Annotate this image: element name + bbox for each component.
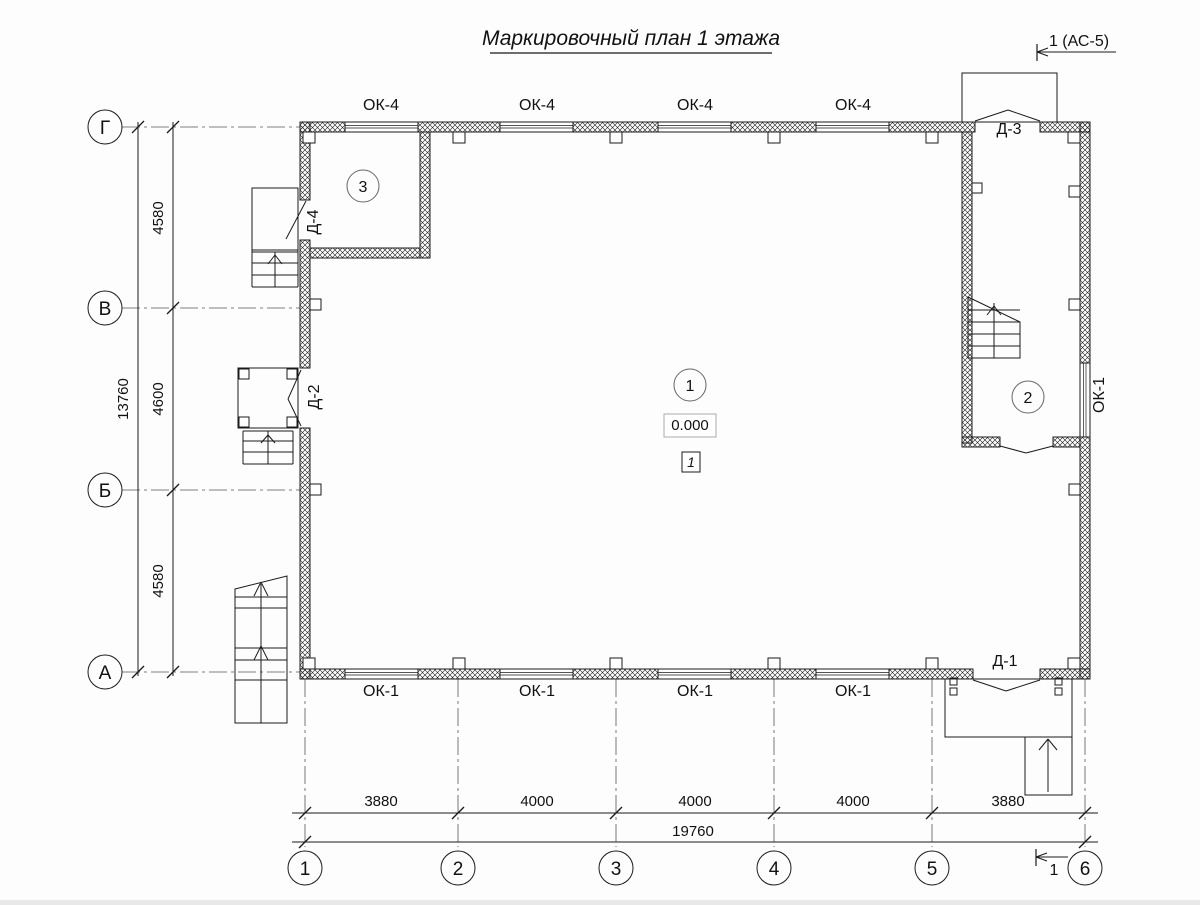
pilaster-mark: [1069, 186, 1080, 197]
door-swing-room2: [1000, 446, 1053, 453]
column-mark: [1068, 658, 1080, 669]
door-label-d3: Д-3: [996, 121, 1021, 138]
drawing-title: Маркировочный план 1 этажа: [482, 27, 780, 50]
drawing-title-group: Маркировочный план 1 этажа: [482, 27, 780, 53]
room-marks: 3 1 2: [347, 170, 1044, 413]
wall-top-pier: [889, 122, 975, 132]
wall-bottom-pier: [731, 669, 816, 679]
window-label-ok1-1: ОК-1: [363, 683, 399, 700]
stair-southwest: [235, 576, 287, 723]
door-swing-d3: [975, 110, 1040, 121]
wall-bottom-pier: [573, 669, 658, 679]
elevation-value: 0.000: [671, 417, 709, 434]
wall-right-segment: [1080, 122, 1090, 363]
wall-top-pier: [418, 122, 500, 132]
door-swing-d2: [288, 370, 301, 426]
dim-bottom-seg-4: 4000: [836, 793, 869, 810]
window-label-ok1-4: ОК-1: [835, 683, 871, 700]
axis-labels-left: Г В Б А: [99, 118, 112, 684]
stair-d4-porch: [252, 250, 298, 287]
window-ok4-1: [345, 122, 418, 132]
floor-plan-canvas: 4580 4600 4580 13760 3880 4000 4000 4000…: [0, 0, 1200, 900]
porch-d2: [238, 368, 298, 428]
porch-d2-corner: [287, 417, 297, 427]
column-mark: [768, 132, 780, 143]
room-number-3: 3: [359, 179, 368, 196]
room-number-1: 1: [686, 378, 695, 395]
porch-d2-corner: [287, 369, 297, 379]
section-mark-bottom-label: 1: [1050, 862, 1059, 879]
elevation-mark: 0.000: [664, 414, 716, 437]
column-mark: [303, 658, 315, 669]
axis-label-a: А: [99, 663, 112, 684]
axis-circles-bottom: [288, 851, 1102, 885]
wall-room2-left: [962, 132, 972, 443]
section-mark-top-label: 1 (АС-5): [1049, 33, 1109, 50]
furniture-mark-value: 1: [687, 454, 695, 470]
axis-label-b: Б: [99, 481, 111, 502]
window-ok4-2: [500, 122, 573, 132]
dim-left-seg-1: 4580: [150, 201, 167, 234]
dim-left-seg-2: 4600: [150, 382, 167, 415]
door-swing-d4: [286, 201, 306, 239]
window-label-ok4-2: ОК-4: [519, 97, 555, 114]
window-labels: ОК-4 ОК-4 ОК-4 ОК-4 ОК-1 ОК-1 ОК-1 ОК-1 …: [363, 97, 1108, 700]
drawing-sheet: 4580 4600 4580 13760 3880 4000 4000 4000…: [0, 0, 1200, 900]
door-swing-d1: [973, 680, 1040, 691]
jamb-mark: [1055, 688, 1062, 695]
dim-bottom-total: 19760: [672, 823, 714, 840]
stair-room2: [968, 297, 1020, 358]
column-mark: [926, 658, 938, 669]
porch-d1: [945, 679, 1072, 737]
left-dimension-labels: 4580 4600 4580 13760: [115, 201, 167, 597]
window-label-ok4-4: ОК-4: [835, 97, 871, 114]
wall-room2-bottom-right: [1053, 437, 1080, 447]
dim-bottom-seg-3: 4000: [678, 793, 711, 810]
wall-left-segment: [300, 240, 310, 368]
column-mark: [926, 132, 938, 143]
wall-bottom-pier: [889, 669, 973, 679]
door-swings: [286, 110, 1053, 691]
window-ok4-3: [658, 122, 731, 132]
window-label-ok1-right: ОК-1: [1091, 377, 1108, 413]
wall-right-segment: [1080, 437, 1090, 679]
dim-bottom-seg-5: 3880: [991, 793, 1024, 810]
column-mark: [453, 658, 465, 669]
window-label-ok4-1: ОК-4: [363, 97, 399, 114]
column-mark: [768, 658, 780, 669]
porch-d3: [962, 73, 1057, 122]
window-label-ok4-3: ОК-4: [677, 97, 713, 114]
pilaster-mark: [310, 484, 321, 495]
axis-label-g: Г: [100, 118, 110, 139]
furniture-mark: 1: [682, 452, 700, 472]
axis-label-3: 3: [611, 859, 622, 880]
dim-bottom-seg-2: 4000: [520, 793, 553, 810]
pilaster-mark: [972, 183, 982, 193]
jamb-mark: [950, 688, 957, 695]
window-ok1-4: [816, 669, 889, 679]
door-label-d4: Д-4: [305, 209, 322, 234]
stair-d2-porch: [243, 431, 293, 464]
grid-lines: [122, 127, 1085, 847]
wall-top-pier: [573, 122, 658, 132]
dim-left-total: 13760: [115, 378, 132, 420]
axis-label-6: 6: [1080, 859, 1091, 880]
window-ok4-4: [816, 122, 889, 132]
pilaster-mark: [1069, 484, 1080, 495]
dim-left-seg-3: 4580: [150, 564, 167, 597]
window-ok1-2: [500, 669, 573, 679]
wall-bottom-pier: [418, 669, 500, 679]
wall-room2-bottom-left: [962, 437, 1000, 447]
axis-label-5: 5: [927, 859, 938, 880]
door-label-d2: Д-2: [306, 384, 323, 409]
axis-label-2: 2: [453, 859, 464, 880]
wall-left-segment: [300, 428, 310, 679]
window-ok1-right: [1080, 363, 1090, 437]
stair-d1-porch: [1039, 739, 1057, 792]
pilaster-mark: [1069, 299, 1080, 310]
column-mark: [453, 132, 465, 143]
bottom-dimension-labels: 3880 4000 4000 4000 3880 19760: [364, 793, 1024, 840]
dim-bottom-seg-1: 3880: [364, 793, 397, 810]
wall-room3-bottom: [310, 248, 420, 258]
window-ok1-3: [658, 669, 731, 679]
porch-d2-corner: [239, 417, 249, 427]
wall-room3-right: [420, 132, 430, 258]
axis-label-v: В: [99, 299, 112, 320]
section-mark-bottom: 1: [1036, 849, 1068, 879]
column-mark: [610, 658, 622, 669]
column-mark: [303, 132, 315, 143]
window-label-ok1-2: ОК-1: [519, 683, 555, 700]
porch-d4: [252, 188, 298, 250]
column-mark: [610, 132, 622, 143]
pilaster-mark: [310, 299, 321, 310]
door-label-d1: Д-1: [992, 653, 1017, 670]
axis-labels-bottom: 1 2 3 4 5 6: [300, 859, 1091, 880]
window-label-ok1-3: ОК-1: [677, 683, 713, 700]
window-ok1-1: [345, 669, 418, 679]
door-labels: Д-4 Д-2 Д-3 Д-1: [305, 121, 1022, 670]
axis-label-1: 1: [300, 859, 311, 880]
room-number-2: 2: [1024, 390, 1033, 407]
column-mark: [1068, 132, 1080, 143]
axis-label-4: 4: [769, 859, 780, 880]
wall-top-pier: [731, 122, 816, 132]
porch-d2-corner: [239, 369, 249, 379]
section-mark-top: 1 (АС-5): [1037, 33, 1116, 61]
